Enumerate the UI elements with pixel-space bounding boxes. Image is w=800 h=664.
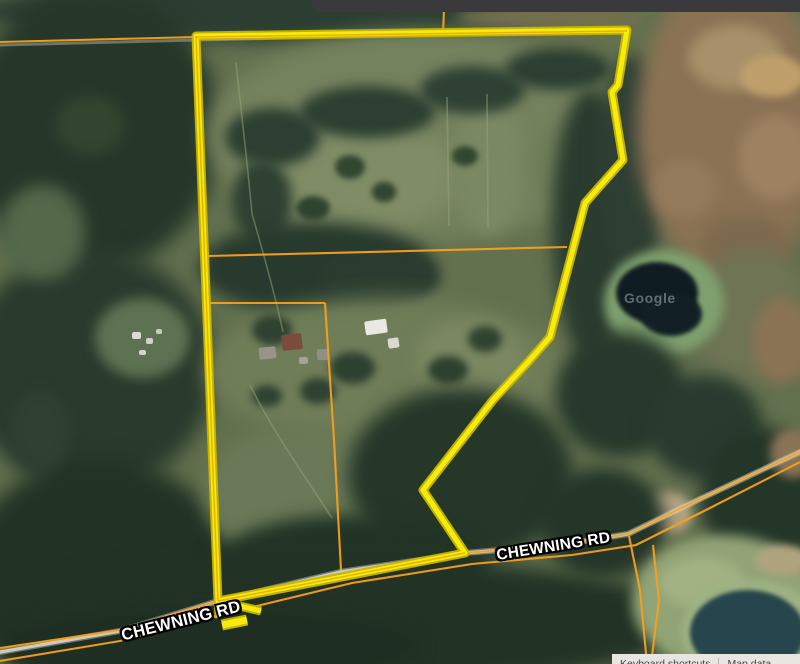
chewning-road-surface (0, 452, 800, 652)
property-boundary[interactable] (196, 30, 627, 601)
boundary-tick (222, 620, 247, 625)
field-trail (487, 94, 488, 228)
keyboard-shortcuts-link[interactable]: Keyboard shortcuts (620, 658, 710, 664)
top-overlay-bar (312, 0, 800, 12)
field-trail (252, 214, 283, 332)
field-trail (250, 385, 332, 518)
parcel-line (465, 452, 800, 553)
field-trail (447, 97, 449, 226)
satellite-map[interactable]: CHEWNING RD CHEWNING RD Google Keyboard … (0, 0, 800, 664)
footer-divider (718, 658, 719, 664)
google-watermark: Google (624, 290, 676, 306)
parcel-line (651, 545, 659, 664)
map-data-attribution: Map data (727, 658, 771, 664)
map-overlay-svg (0, 0, 800, 664)
property-boundary-outline (196, 30, 627, 601)
boundary-core-line (196, 36, 218, 601)
chewning-road-surface (0, 452, 800, 652)
parcel-line (325, 303, 341, 570)
field-trail (236, 62, 252, 214)
parcel-line (629, 536, 647, 664)
map-footer-bar: Keyboard shortcuts Map data (612, 654, 800, 664)
